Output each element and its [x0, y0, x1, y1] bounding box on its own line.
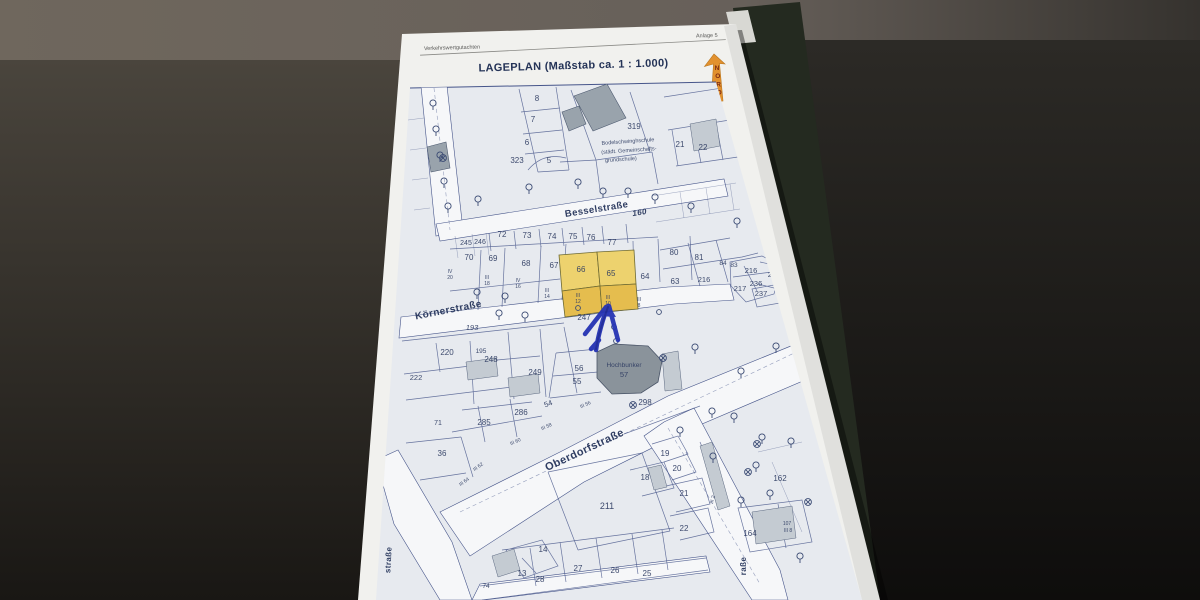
parcel-label: 5 — [547, 156, 552, 165]
table-shadow-left — [0, 60, 408, 600]
parcel-label: 14 — [539, 545, 548, 554]
parcel-label: 237 — [755, 289, 768, 298]
parcel-label: 20 — [447, 275, 453, 281]
parcel-label: 64 — [641, 272, 650, 281]
parcel-label: 14 — [544, 294, 550, 300]
highlighted-parcels — [559, 250, 638, 317]
parcel-label: 22 — [699, 143, 708, 152]
parcel-label: 57 — [620, 370, 628, 379]
parcel-label: 84 — [719, 260, 727, 267]
parcel-label: 19 — [661, 449, 670, 458]
parcel-label: 20 — [673, 464, 682, 473]
parcel-label: 83 — [730, 262, 738, 269]
photographed-site-plan: Verkehrswertgutachten Anlage 5 LAGEPLAN … — [0, 0, 1200, 600]
parcel-label: 28 — [536, 575, 545, 584]
parcel-label: 164 — [743, 529, 757, 538]
parcel-label: 6 — [525, 138, 530, 147]
parcel-label: 56 — [575, 364, 584, 373]
parcel-label: 80 — [670, 248, 679, 257]
parcel-label: 63 — [671, 277, 680, 286]
parcel-label: 107 — [783, 521, 792, 527]
parcel-label: 66 — [577, 265, 586, 274]
parcel-label: 286 — [514, 408, 528, 417]
parcel-label: 74 — [482, 583, 490, 590]
parcel-label: 25 — [643, 569, 652, 578]
parcel-label: 18 — [484, 281, 490, 287]
parcel-label: 8 — [535, 94, 540, 103]
parcel-label: 217 — [734, 284, 747, 293]
parcel-label: 236 — [750, 279, 763, 288]
parcel-label: 75 — [569, 232, 578, 241]
parcel-label: 319 — [627, 122, 641, 131]
parcel-label: 70 — [465, 253, 474, 262]
parcel-label: 249 — [528, 368, 542, 377]
parcel-label: 162 — [773, 474, 787, 483]
parcel-label: 81 — [695, 253, 704, 262]
parcel-label: 74 — [548, 232, 557, 241]
parcel-label: 71 — [434, 420, 442, 427]
attachment-label: Anlage 5 — [696, 33, 718, 40]
parcel-label: 18 — [641, 473, 650, 482]
parcel-label: 247 — [577, 313, 591, 322]
parcel-label: 211 — [600, 501, 614, 511]
parcel-label: 216 — [698, 275, 711, 284]
parcel-label: 246 — [474, 239, 486, 246]
parcel-label: 195 — [476, 348, 487, 355]
parcel-label: 248 — [484, 355, 498, 364]
parcel-label: 36 — [438, 449, 447, 458]
parcel-label: 69 — [489, 254, 498, 263]
photo-canvas: Verkehrswertgutachten Anlage 5 LAGEPLAN … — [0, 0, 1200, 600]
parcel-label: 21 — [680, 489, 689, 498]
parcel-label: 8 — [638, 303, 641, 309]
highlighted-parcel-65 — [597, 250, 636, 286]
parcel-label: 323 — [510, 156, 524, 165]
street-label: raße — [739, 557, 748, 576]
parcel-label: 76 — [587, 233, 596, 242]
parcel-label: 245 — [460, 240, 472, 247]
parcel-label: 77 — [608, 238, 617, 247]
parcel-label: 220 — [440, 348, 454, 357]
parcel-label: 222 — [410, 373, 423, 382]
parcel-label: 12 — [575, 299, 581, 305]
parcel-label: 73 — [523, 231, 532, 240]
parcel-label: 68 — [522, 259, 531, 268]
parcel-label: 216 — [745, 266, 758, 275]
parcel-label: 21 — [676, 140, 685, 149]
parcel-label: 55 — [573, 377, 582, 386]
parcel-label: Hochbunker — [606, 362, 642, 369]
parcel-label: 26 — [611, 566, 620, 575]
parcel-label: 13 — [518, 569, 527, 578]
parcel-label: 16 — [515, 284, 521, 290]
building — [508, 374, 540, 397]
parcel-label: 285 — [477, 418, 491, 427]
parcel-label: 72 — [498, 230, 507, 239]
parcel-label: III 8 — [784, 528, 793, 534]
street-label: straße — [383, 546, 393, 573]
parcel-label: 298 — [638, 398, 652, 407]
parcel-label: 7 — [531, 115, 536, 124]
parcel-label: 27 — [574, 564, 583, 573]
parcel-label: 67 — [550, 261, 559, 270]
parcel-label: 193 — [466, 323, 479, 332]
parcel-label: 65 — [607, 269, 616, 278]
parcel-label: 22 — [680, 524, 689, 533]
